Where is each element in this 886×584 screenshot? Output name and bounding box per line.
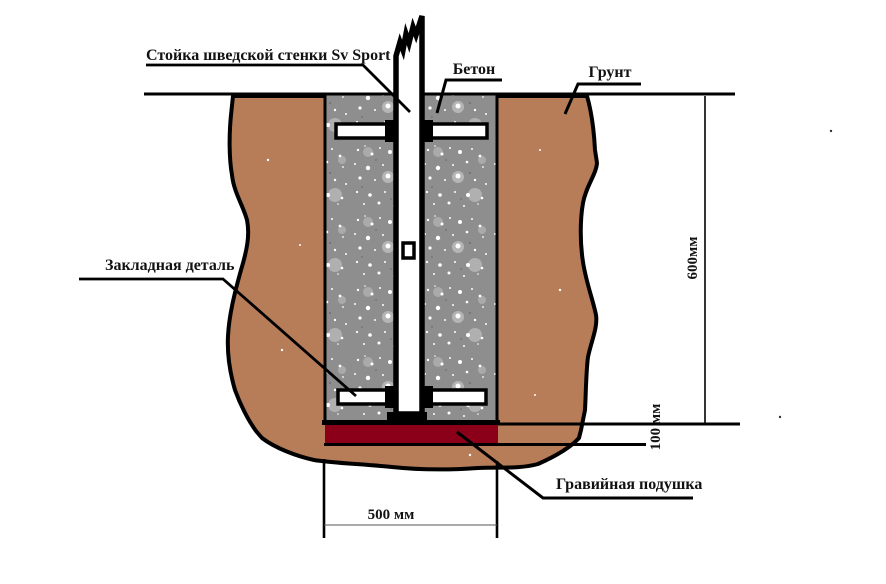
post [396,16,422,414]
dimension-depth: 600мм [685,96,705,423]
post-bottom-cap [387,412,427,423]
label-post: Стойка шведской стенки Sv Sport [146,47,391,64]
stray-dots [779,130,832,418]
label-concrete: Бетон [453,61,496,78]
plate-bottom-left [338,390,390,404]
dimension-pad-thickness-text: 100 мм [648,404,664,451]
installation-diagram: Стойка шведской стенки Sv Sport Бетон Гр… [0,0,886,584]
diagram-svg: Стойка шведской стенки Sv Sport Бетон Гр… [0,0,886,584]
label-embedded-part: Закладная деталь [105,257,235,274]
plate-top-right [429,124,487,138]
gravel-pad [325,423,498,444]
dimension-depth-text: 600мм [685,237,701,280]
plate-bottom-right [428,390,486,404]
label-soil: Грунт [589,64,632,81]
dimension-width-text: 500 мм [368,507,415,523]
label-gravel-pad: Гравийная подушка [556,476,702,493]
dimension-width: 500 мм [324,459,497,538]
post-hole [403,243,414,258]
plate-top-left [336,124,389,138]
